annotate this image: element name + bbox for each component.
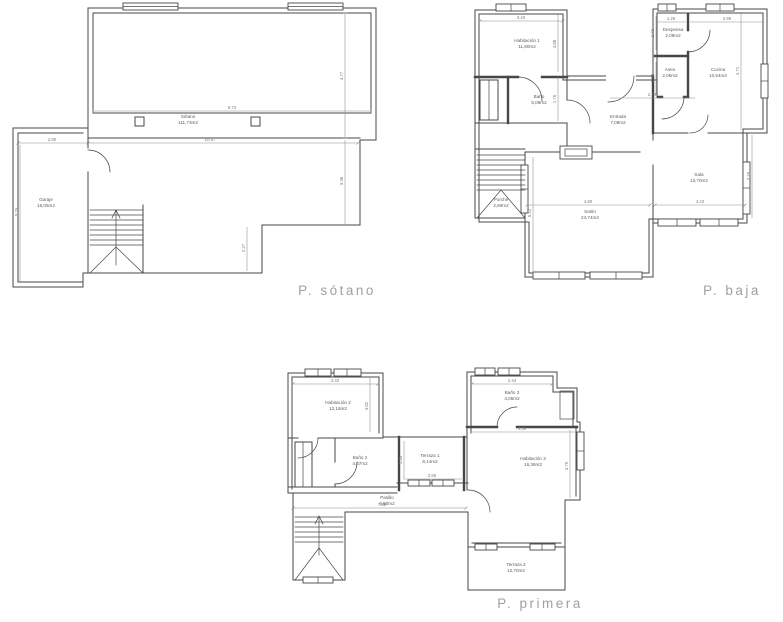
dim-label: 1.30: [650, 73, 655, 82]
plan-title-sotano: P. sótano: [298, 283, 376, 298]
stairs-up-arrow: [112, 210, 120, 265]
dim-label: 9.73: [228, 105, 237, 110]
dim-label: 4.23: [696, 199, 705, 204]
room-name-garaje: Garaje: [39, 197, 53, 202]
room-name-porche: Porche: [494, 197, 509, 202]
floor-plan-primera: 3.43 3.02 2.44 1.35 2.66 4.36 4.75 7.25 …: [270, 355, 600, 622]
room-name-pasillo: Pasillo: [380, 495, 394, 500]
dim-label: 2.74: [648, 92, 657, 97]
walls: [13, 8, 376, 287]
front-door-opening: [606, 72, 636, 82]
dim-label: 3.75: [746, 171, 751, 180]
room-name-habitacion-3: Habitación 3: [520, 456, 546, 461]
room-area-bano-2: 4,07m2: [352, 461, 368, 466]
dim-label: 4.75: [564, 461, 569, 470]
windows: [123, 3, 343, 10]
room-name-terraza-1: Terraza 1: [420, 453, 440, 458]
dim-label: 5.12: [527, 208, 532, 217]
room-area-salon: 24,74m2: [581, 215, 599, 220]
column: [135, 117, 144, 126]
dim-label: 1.76: [552, 94, 557, 103]
room-name-bano-3: Baño 3: [505, 390, 520, 395]
dimension-lines: 9.73 10.97 2.80 4.77 3.36 2.27 5.25: [14, 13, 371, 282]
room-area-habitacion-2: 12,16m2: [329, 406, 347, 411]
room-name-bano: Baño: [534, 94, 545, 99]
dim-label: 3.43: [331, 378, 340, 383]
room-area-porche: 2,80m2: [493, 203, 509, 208]
plan-title-primera: P. primera: [497, 596, 583, 611]
dim-label: 3.43: [517, 15, 526, 20]
dim-label: 4.77: [339, 71, 344, 80]
dim-label: 2.27: [241, 243, 246, 252]
room-area-cocina: 10,54m2: [709, 73, 727, 78]
dimension-lines: 3.43 3.02 2.44 1.35 2.66 4.36 4.75 7.25: [292, 378, 576, 510]
dim-label: 5.25: [14, 207, 19, 216]
room-name-bano-2: Baño 2: [353, 455, 368, 460]
room-name-despensa: Despensa: [663, 27, 684, 32]
room-area-bano: 5,08m2: [531, 100, 547, 105]
room-area-entrada: 7,08m2: [610, 120, 626, 125]
room-name-habitacion-2: Habitación 2: [325, 400, 351, 405]
room-name-sotano: Sótano: [181, 114, 196, 119]
room-area-terraza-2: 12,70m2: [507, 568, 525, 573]
room-area-habitacion-3: 16,36m2: [524, 462, 542, 467]
room-area-pasillo: 6,80m2: [379, 501, 395, 506]
stairs: [90, 210, 143, 273]
floor-plan-sheet: 9.73 10.97 2.80 4.77 3.36 2.27 5.25 Sóta…: [0, 0, 783, 622]
room-area-bano-3: 4,05m2: [504, 396, 520, 401]
door-arcs: [88, 150, 110, 172]
dim-label: 10.97: [205, 137, 216, 142]
dim-label: 4.08: [552, 39, 557, 48]
dim-label: 3.36: [339, 176, 344, 185]
room-name-aseo: Aseo: [665, 67, 676, 72]
room-name-terraza-2: Terraza 2: [506, 562, 526, 567]
room-name-entrada: Entrada: [610, 114, 627, 119]
room-area-sala: 13,70m2: [690, 178, 708, 183]
floor-plan-sotano: 9.73 10.97 2.80 4.77 3.36 2.27 5.25 Sóta…: [0, 0, 400, 310]
room-area-terraza-1: 6,14m2: [422, 459, 438, 464]
room-area-despensa: 2,08m2: [665, 33, 681, 38]
floor-plan-baja: 3.43 1.29 2.96 4.08 1.76 4.71 1.71 1.30 …: [455, 0, 783, 310]
room-area-aseo: 2,05m2: [662, 73, 678, 78]
entrance-stairs: [477, 155, 525, 218]
chimney: [560, 391, 574, 419]
dim-label: 2.66: [428, 473, 437, 478]
closet: [295, 442, 312, 487]
room-name-cocina: Cocina: [711, 67, 726, 72]
dim-label: 1.71: [650, 28, 655, 37]
dim-label: 2.80: [48, 137, 57, 142]
room-name-salon: Salón: [584, 209, 596, 214]
room-area-habitacion-1: 11,80m2: [518, 44, 536, 49]
room-name-sala: Sala: [694, 172, 704, 177]
dim-label: 1.35: [398, 455, 403, 464]
column: [251, 117, 260, 126]
walls: [475, 9, 767, 277]
stairs-up-arrow: [315, 516, 323, 555]
dim-label: 4.71: [735, 66, 740, 75]
room-area-garaje: 16,05m2: [37, 203, 55, 208]
plan-title-baja: P. baja: [703, 283, 761, 298]
windows: [496, 4, 768, 279]
dim-label: 4.36: [518, 426, 527, 431]
dim-label: 1.29: [667, 16, 676, 21]
dim-label: 2.96: [723, 16, 732, 21]
door-arcs: [298, 407, 517, 512]
room-name-habitacion-1: Habitación 1: [514, 38, 540, 43]
dimension-lines: 3.43 1.29 2.96 4.08 1.76 4.71 1.71 1.30 …: [479, 13, 765, 273]
stairs: [295, 516, 343, 580]
dim-label: 3.02: [364, 401, 369, 410]
dim-label: 2.44: [508, 378, 517, 383]
dim-label: 4.80: [584, 199, 593, 204]
room-area-sotano: 111,73m2: [178, 120, 198, 125]
